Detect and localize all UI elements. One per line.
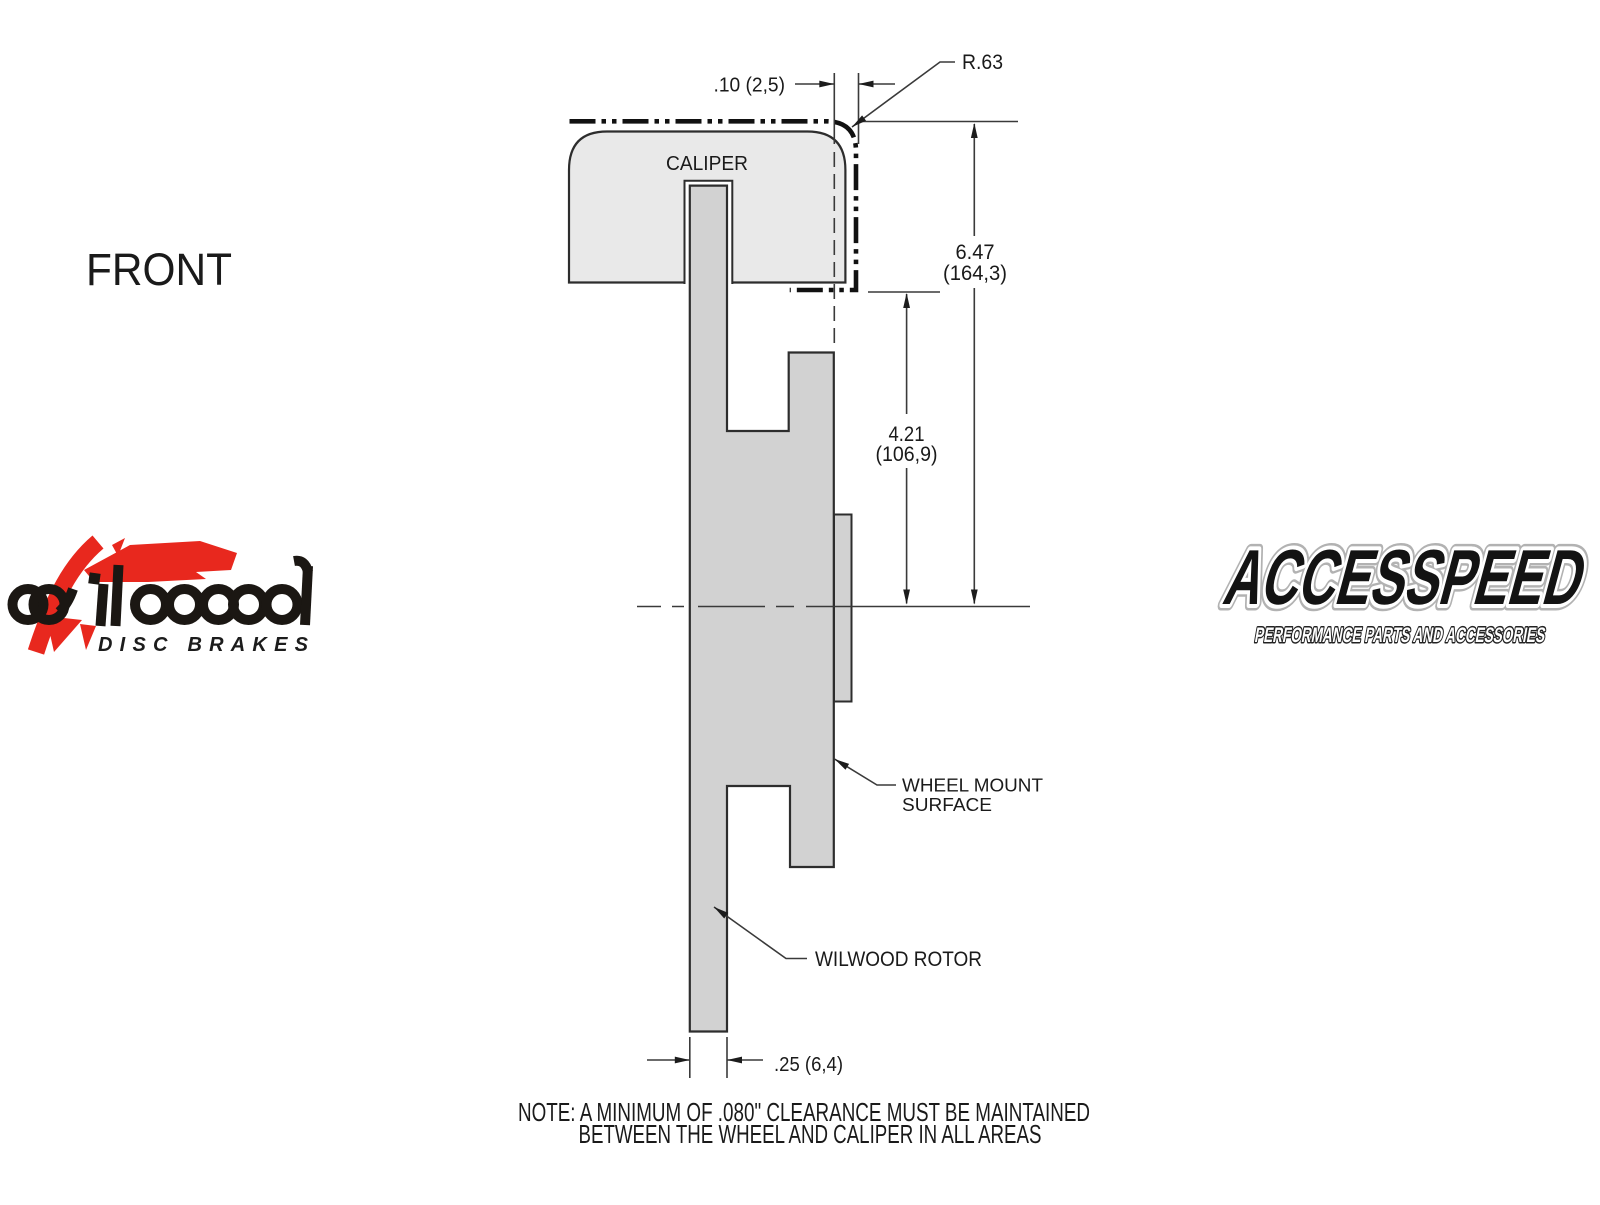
svg-text:.25 (6,4): .25 (6,4) bbox=[774, 1054, 843, 1076]
svg-text:PERFORMANCE PARTS AND ACCESSOR: PERFORMANCE PARTS AND ACCESSORIES bbox=[1253, 624, 1547, 647]
svg-text:6.47: 6.47 bbox=[956, 241, 995, 264]
svg-text:WHEEL MOUNT: WHEEL MOUNT bbox=[902, 775, 1043, 796]
svg-text:ACCESSPEED: ACCESSPEED bbox=[1217, 533, 1596, 620]
svg-text:BETWEEN THE WHEEL AND CALIPER: BETWEEN THE WHEEL AND CALIPER IN ALL ARE… bbox=[579, 1119, 1042, 1149]
svg-text:(164,3): (164,3) bbox=[943, 262, 1007, 285]
svg-text:CALIPER: CALIPER bbox=[666, 153, 748, 175]
svg-text:SURFACE: SURFACE bbox=[902, 794, 992, 815]
svg-text:R.63: R.63 bbox=[962, 51, 1003, 74]
svg-text:(106,9): (106,9) bbox=[876, 443, 938, 466]
svg-text:FRONT: FRONT bbox=[86, 244, 232, 295]
svg-text:WILWOOD ROTOR: WILWOOD ROTOR bbox=[815, 948, 982, 971]
svg-text:.10 (2,5): .10 (2,5) bbox=[714, 75, 786, 97]
